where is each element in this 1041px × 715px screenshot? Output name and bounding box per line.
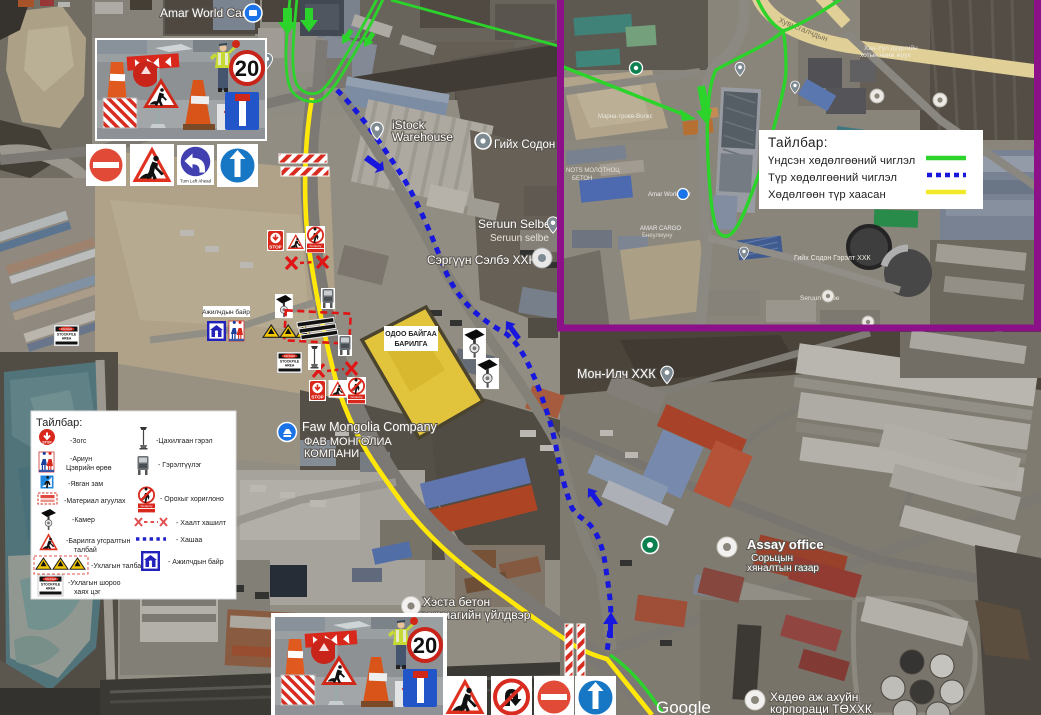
svg-text:БЕТОН: БЕТОН [572,176,592,182]
svg-text:-Цахилгаан гэрэл: -Цахилгаан гэрэл [156,438,213,445]
svg-text:Түр хөдөлгөөний чиглэл: Түр хөдөлгөөний чиглэл [768,172,897,184]
svg-text:Гийх Содон Гэрэлт ХХК: Гийх Содон Гэрэлт ХХК [794,254,871,262]
svg-text:Үндсэн хөдөлгөөний чиглэл: Үндсэн хөдөлгөөний чиглэл [768,155,915,167]
svg-text:корпораци ТӨХХК: корпораци ТӨХХК [770,702,872,715]
svg-text:Марна-тровв-Волкс: Марна-тровв-Волкс [598,114,653,120]
svg-text:Цэврийн өрөө: Цэврийн өрөө [66,464,112,472]
svg-text:Seruun Selbe: Seruun Selbe [478,217,551,231]
svg-text:хаях цэг: хаях цэг [74,589,101,596]
svg-text:Хан-Уул дүүргийн: Хан-Уул дүүргийн [864,44,918,52]
svg-text:Ажилчдын байр: Ажилчдын байр [202,308,250,316]
svg-text:Assay office: Assay office [747,537,824,552]
svg-text:-Ариун: -Ариун [70,456,92,463]
svg-text:- Гэрэлтүүлэг: - Гэрэлтүүлэг [158,462,202,469]
svg-text:-Камер: -Камер [72,517,95,524]
svg-text:-Зогс: -Зогс [70,438,87,445]
svg-text:-Ухлагын талбай: -Ухлагын талбай [91,562,145,570]
svg-text:Мон-Илч ХХК: Мон-Илч ХХК [577,367,656,381]
svg-text:- Орохыг хориглоно: - Орохыг хориглоно [160,496,224,503]
svg-text:Хэста бетон: Хэста бетон [423,595,490,609]
svg-text:Тайлбар:: Тайлбар: [768,135,828,150]
svg-text:AMAR CARGO: AMAR CARGO [640,226,681,232]
svg-text:Faw Mongolia Company: Faw Mongolia Company [302,420,438,434]
svg-text:талбай: талбай [74,546,97,554]
svg-text:ФАВ МОНГОЛИА: ФАВ МОНГОЛИА [304,436,392,448]
svg-text:-Барилга угсралтын: -Барилга угсралтын [66,538,130,545]
svg-text:КОМПАНИ: КОМПАНИ [304,448,359,460]
svg-text:Гийх Содон: Гийх Содон [494,139,555,151]
svg-text:Warehouse: Warehouse [392,130,453,144]
svg-text:Тайлбар:: Тайлбар: [36,417,82,429]
svg-text:-Ухлагын шороо: -Ухлагын шороо [68,580,121,587]
svg-text:хяналтын газар: хяналтын газар [747,563,819,574]
svg-text:NOTS МОЛОТНОЦ: NOTS МОЛОТНОЦ [566,168,620,174]
svg-text:- Ажилчдын байр: - Ажилчдын байр [168,558,224,566]
svg-text:хотын чинж жуух: хотын чинж жуух [860,52,911,59]
svg-text:-Явган зам: -Явган зам [68,481,103,488]
svg-text:Бнеулмуну: Бнеулмуну [642,233,672,239]
svg-text:Сэргүүн Сэлбэ ХХК: Сэргүүн Сэлбэ ХХК [427,253,536,267]
svg-text:Google: Google [656,698,711,715]
svg-text:Хөдөлгөөн түр хаасан: Хөдөлгөөн түр хаасан [768,189,886,201]
svg-text:Seruun selbe: Seruun selbe [490,233,549,244]
svg-text:- Хашаа: - Хашаа [176,537,202,544]
svg-text:БАРИЛГА: БАРИЛГА [394,341,427,348]
svg-text:-Материал агуулах: -Материал агуулах [64,498,126,505]
svg-text:ОДОО БАЙГАА: ОДОО БАЙГАА [385,329,437,338]
svg-text:Amar World Car: Amar World Car [160,6,246,20]
svg-text:- Хаалт хашилт: - Хаалт хашилт [176,520,227,527]
